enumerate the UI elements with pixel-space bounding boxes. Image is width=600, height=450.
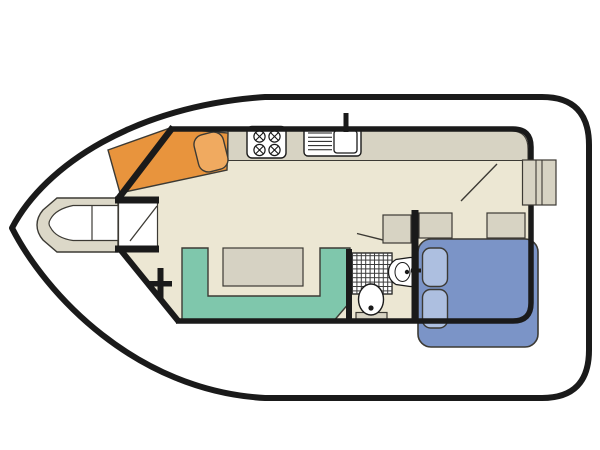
- bow-v-seat: [49, 206, 118, 241]
- entry-companionway: [119, 201, 158, 248]
- floor-plan: [0, 0, 600, 450]
- washbasin-tap: [411, 269, 421, 273]
- bedroom-cabinet-left: [419, 213, 452, 238]
- bed-group: [418, 239, 538, 347]
- bow-locker-group: [37, 198, 118, 252]
- cleat-horizontal: [148, 281, 172, 287]
- bedroom-cabinet-right: [487, 213, 525, 238]
- sink-unit: [304, 128, 361, 157]
- dinette-table: [223, 248, 303, 286]
- side-steps: [523, 160, 557, 205]
- washbasin-drain-dot: [405, 270, 409, 274]
- toilet-drain-dot: [368, 305, 373, 310]
- bathroom-cabinet: [383, 215, 411, 243]
- bed-pillow-top: [423, 248, 448, 287]
- side-steps-group: [523, 160, 557, 205]
- floor-plan-image: [0, 0, 600, 450]
- sink-tap: [344, 113, 349, 132]
